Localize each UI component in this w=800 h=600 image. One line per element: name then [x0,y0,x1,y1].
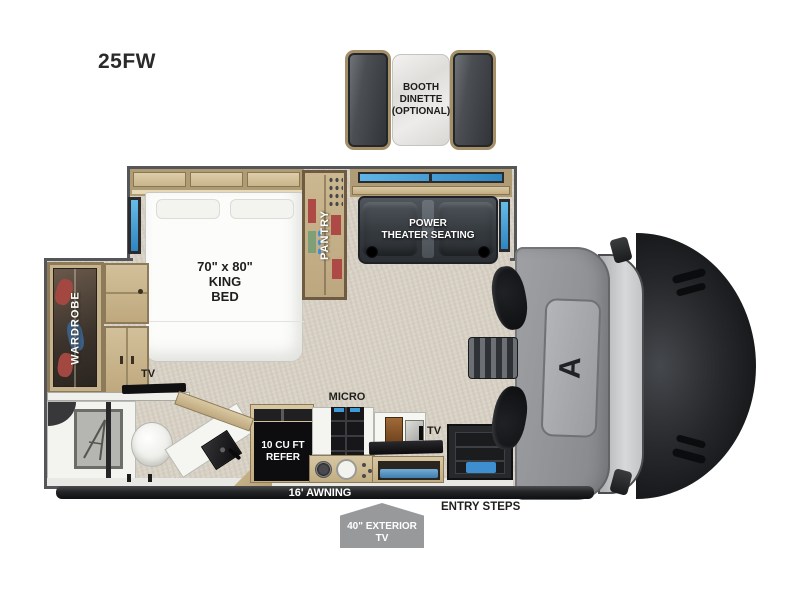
pillow [230,199,294,219]
floorplan-scene: 25FW BOOTH DINETTE (OPTIONAL) 70" x 80" … [0,0,800,600]
stove [331,407,364,455]
bed-type-label: KING [146,274,304,289]
living-window-strip [358,172,504,183]
bathroom-wall [47,392,190,401]
entry-steps-label: ENTRY STEPS [441,501,520,513]
drawer-knob [138,289,143,294]
refer-label-line1: 10 CU FT [261,440,304,452]
stove-blue-accent [350,408,360,412]
wardrobe: WARDROBE [47,262,104,394]
kitchen-counter-front [309,455,375,483]
faucet-knob [362,463,366,467]
faucet-knob [362,474,366,478]
panel-divider [281,409,284,421]
awning-label: 16' AWNING [280,487,360,499]
living-window-right [499,199,510,252]
pantry-cabinet: PANTRY [302,170,347,300]
micro-label: MICRO [321,391,373,403]
exterior-tv-line1: 40" EXTERIOR [347,521,417,533]
theater-label-line1: POWER [409,218,447,230]
refrigerator-frame: 10 CU FT REFER [250,404,314,483]
sink-drain [219,446,226,453]
kitchen-tv-label: TV [427,425,441,437]
burner [315,461,332,478]
optional-dinette: BOOTH DINETTE (OPTIONAL) [345,48,497,152]
refer-label-line2: REFER [266,452,300,464]
door-handle [131,356,134,364]
refrigerator: 10 CU FT REFER [254,422,312,481]
door-handle [120,356,123,364]
king-bed: 70" x 80" KING BED [145,192,303,362]
cabinet-rail [352,186,510,195]
toilet [131,422,173,467]
model-label: 25FW [98,50,156,74]
dinette-label-line2: DINETTE [400,94,443,106]
bedroom-tv-label: TV [141,368,155,380]
nightstand [104,263,149,324]
wall-hook [127,474,131,482]
bed-label: 70" x 80" KING BED [146,259,304,304]
exterior-tv-sign: 40" EXTERIOR TV [340,503,424,548]
dinette-label-line3: (OPTIONAL) [392,106,450,118]
cabinet-door [133,172,186,187]
shower-glass-door [106,402,111,483]
shower-corner-shelf [48,402,76,426]
pantry-label: PANTRY [319,210,331,260]
pillow [156,199,220,219]
cabinet-door-brown [385,417,403,444]
window-divider [429,172,432,183]
bed-word-label: BED [146,289,304,304]
bedroom-window [128,197,141,254]
theater-label-line2: THEATER SEATING [382,230,475,242]
kitchen-tv [369,440,443,455]
refer-top-panels [254,409,312,421]
window-glass [131,200,138,251]
stove-blue-accent [334,408,344,412]
round-sink [336,459,357,480]
bed-size-label: 70" x 80" [146,259,304,274]
cabinet-door [190,172,243,187]
wardrobe-label: WARDROBE [70,291,82,364]
dinette-table: BOOTH DINETTE (OPTIONAL) [392,54,450,146]
shower [47,401,136,484]
cab-logo-panel: A [541,298,602,438]
shelf-blue-bin [380,469,438,478]
cabinet-door [247,172,300,187]
step-mat [466,462,496,473]
dinette-bench-left [345,50,391,150]
theater-label: POWER THEATER SEATING [358,196,498,264]
brand-a-icon: A [554,357,589,380]
dinette-bench-right [450,50,496,150]
cabinet-seam [126,328,128,392]
shower-pan [74,409,123,469]
wall-hook [148,474,152,482]
exterior-tv-line2: TV [376,533,389,545]
bed-fold-line [146,321,304,322]
theater-seating: POWER THEATER SEATING [358,196,498,264]
window-glass [501,202,508,249]
shower-door-fold-icon [77,412,120,466]
living-overhead-cabinet [350,169,512,197]
kitchen-lower-cabinet [372,456,444,483]
sink-faucet [419,426,423,440]
dinette-label-line1: BOOTH [403,82,439,94]
cab-console-steps [468,337,518,379]
